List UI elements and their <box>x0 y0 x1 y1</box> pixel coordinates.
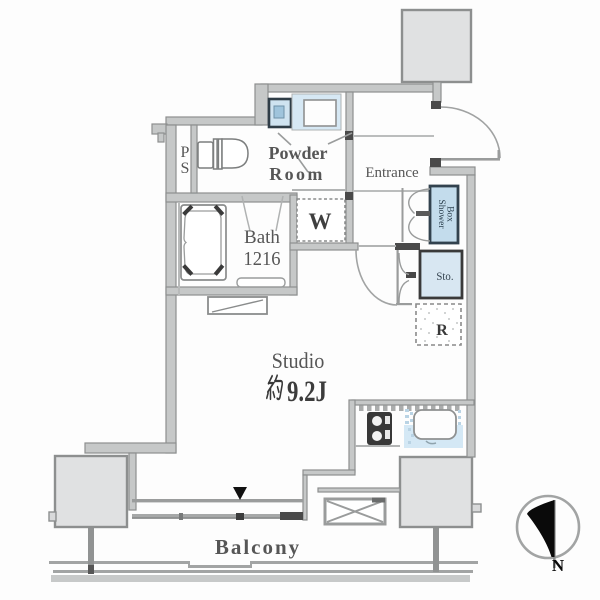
svg-text:Balcony: Balcony <box>215 535 301 559</box>
svg-text:N: N <box>552 556 565 575</box>
svg-text:Bath: Bath <box>244 227 280 248</box>
svg-text:S: S <box>181 160 190 177</box>
svg-text:Entrance: Entrance <box>365 165 419 181</box>
svg-text:Powder: Powder <box>269 143 328 163</box>
svg-text:P: P <box>181 144 190 161</box>
svg-text:9.2J: 9.2J <box>287 374 327 408</box>
svg-text:Sto.: Sto. <box>436 271 453 284</box>
svg-text:Studio: Studio <box>272 348 325 373</box>
svg-text:R: R <box>436 322 448 339</box>
svg-text:1216: 1216 <box>243 248 281 270</box>
svg-text:Room: Room <box>269 164 325 184</box>
svg-text:Box: Box <box>445 206 455 222</box>
svg-text:W: W <box>309 209 332 234</box>
svg-text:Shower: Shower <box>436 199 446 229</box>
